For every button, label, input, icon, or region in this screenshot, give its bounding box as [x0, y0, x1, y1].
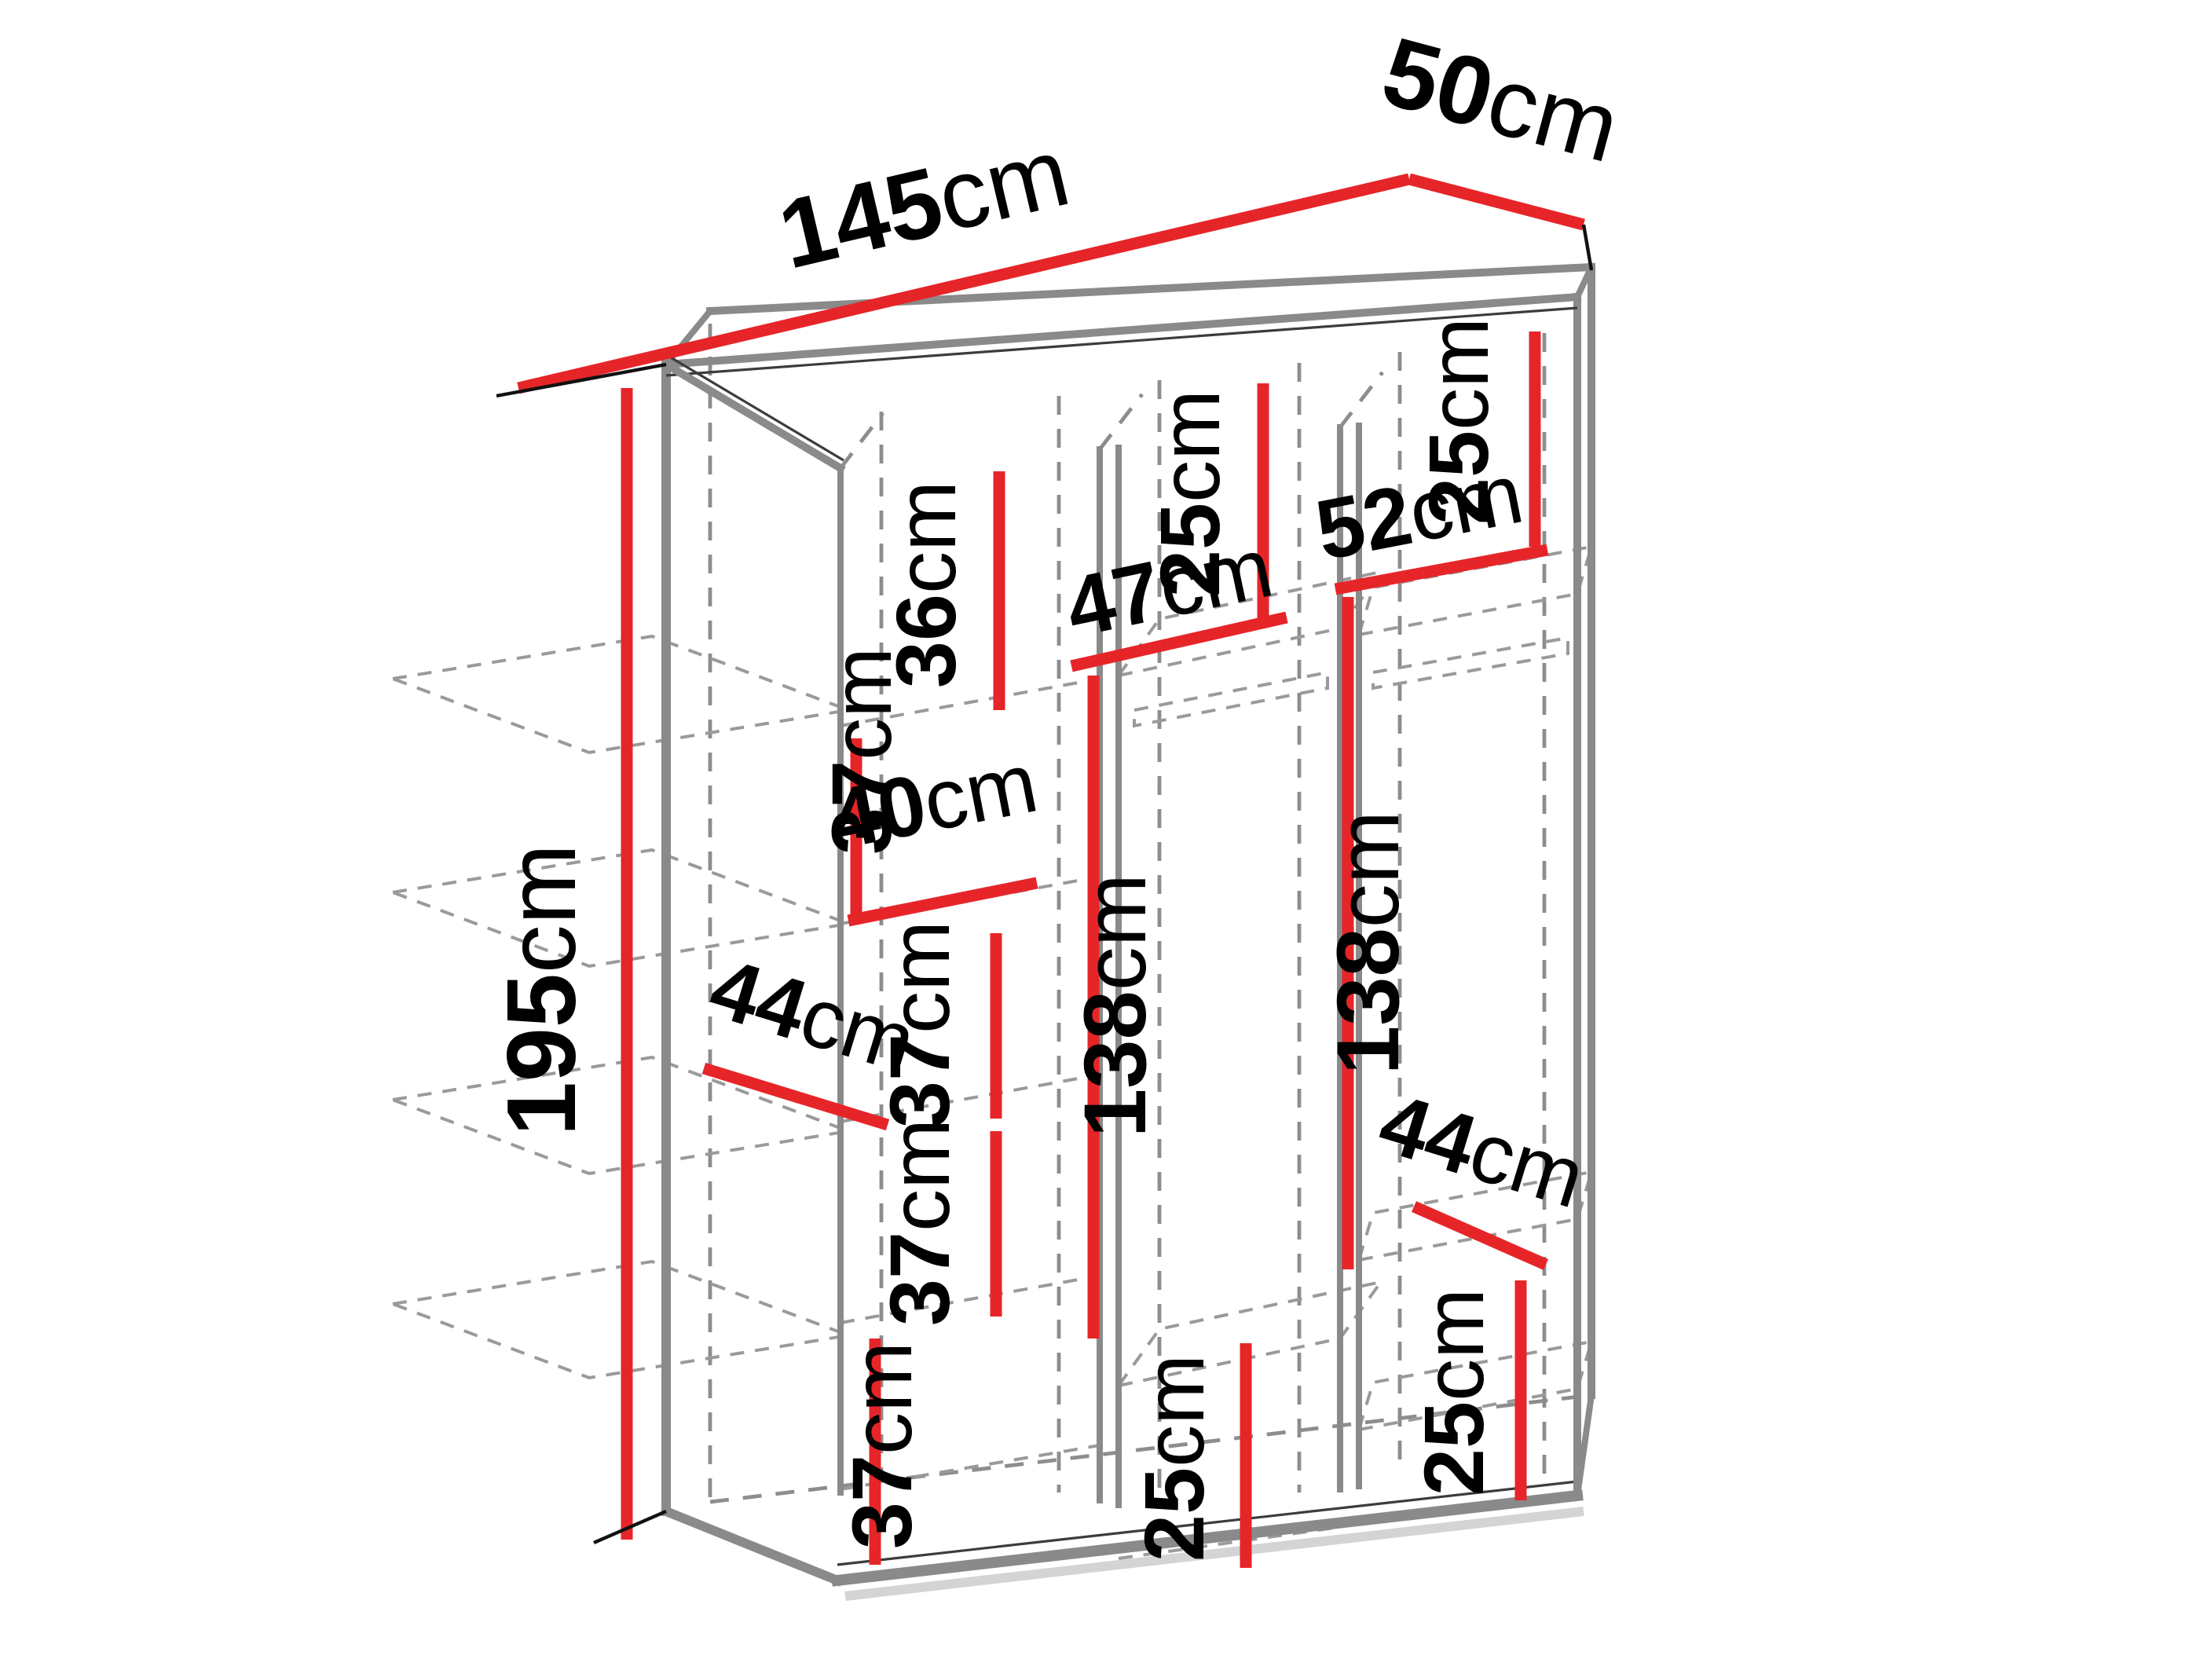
hidden-shelf-left-4: [393, 1262, 848, 1378]
left-panel-top-seam: [669, 357, 844, 460]
label-middle-hanging: 138cm: [1066, 873, 1164, 1137]
diagram-canvas: 145cm 50cm 195cm 36cm 47cm 25cm 52cm 25c…: [0, 0, 2212, 1659]
label-right-shelf-depth: 44cm: [1369, 1075, 1595, 1226]
hidden-shelf-left-3: [393, 1057, 848, 1174]
label-middle-top-cell: 25cm: [1142, 390, 1237, 597]
left-panel-top-inner-edge: [666, 364, 840, 468]
left-panel-bottom-edge: [666, 1511, 837, 1580]
label-left-cell3: 37cm: [872, 921, 967, 1128]
label-left-bottom-cell: 37cm: [834, 1342, 929, 1549]
label-right-bottom-cell: 25cm: [1406, 1288, 1501, 1496]
dim-line-left-shelf-width: [848, 883, 1037, 921]
hidden-shelf-left-1: [393, 636, 848, 753]
label-middle-bottom-cell: 25cm: [1126, 1354, 1221, 1562]
label-overall-height: 195cm: [488, 844, 596, 1136]
label-left-cell4: 37cm: [872, 1119, 967, 1326]
label-right-hanging: 138cm: [1319, 811, 1417, 1075]
wardrobe-dimension-diagram: 145cm 50cm 195cm 36cm 47cm 25cm 52cm 25c…: [0, 0, 2212, 1659]
hidden-right-hanging-rod: [1373, 638, 1568, 688]
label-overall-depth: 50cm: [1372, 17, 1631, 184]
hidden-top-diagonal-2: [1100, 394, 1142, 449]
hidden-top-diagonal-1: [840, 413, 883, 468]
dim-line-right-shelf-depth: [1414, 1207, 1546, 1265]
hidden-top-diagonal-3: [1340, 372, 1382, 427]
dim-line-overall-depth: [1409, 179, 1584, 225]
label-right-top-cell: 25cm: [1411, 317, 1506, 525]
hidden-shelf-left-2: [393, 850, 848, 966]
